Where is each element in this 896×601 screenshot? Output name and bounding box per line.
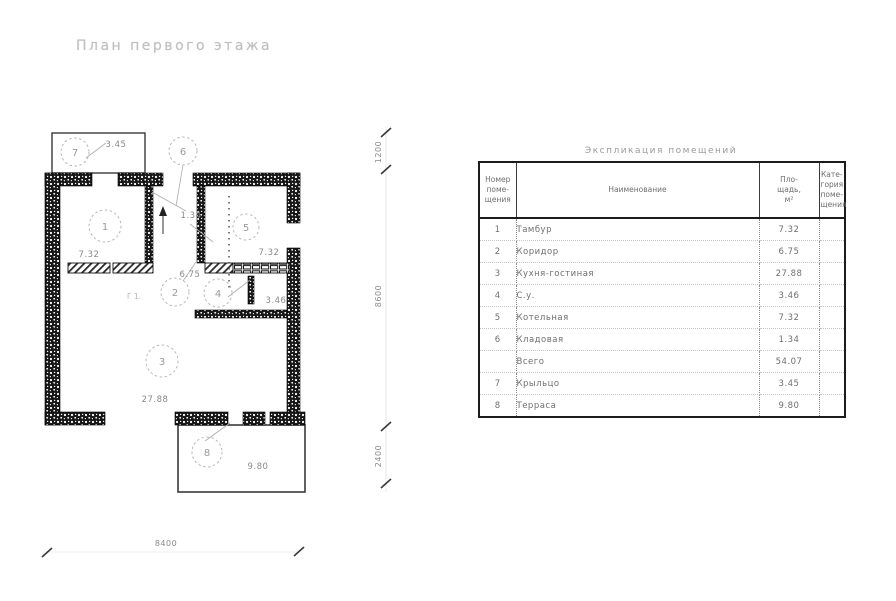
header-category: Кате- гория поме- щения — [819, 162, 845, 218]
area-label-room6: 1.34 — [181, 211, 202, 221]
area-label-room1: 7.32 — [79, 250, 100, 260]
terrace-outline — [178, 425, 305, 492]
cell-room-number — [479, 351, 516, 373]
cell-room-name: С.у. — [516, 285, 759, 307]
header-area: Пло- щадь, м² — [759, 162, 819, 218]
dim-bottom: 8400 — [155, 539, 177, 548]
dim-right-bottom: 2400 — [374, 445, 383, 467]
cell-room-area: 1.34 — [759, 329, 819, 351]
area-label-room5: 7.32 — [259, 248, 280, 258]
cell-room-category — [819, 307, 845, 329]
porch-outline — [52, 133, 145, 173]
area-label-room3: 27.88 — [142, 395, 169, 405]
cell-room-area: 9.80 — [759, 395, 819, 418]
room-number-5: 5 — [243, 223, 249, 234]
cell-room-area: 6.75 — [759, 241, 819, 263]
dimension-line-bottom: 8400 — [42, 539, 304, 557]
cell-room-number: 1 — [479, 218, 516, 241]
cell-room-number: 5 — [479, 307, 516, 329]
cell-room-name: Кладовая — [516, 329, 759, 351]
cell-room-category — [819, 218, 845, 241]
cell-room-name: Кухня-гостиная — [516, 263, 759, 285]
cell-room-category — [819, 351, 845, 373]
table-row: 4 С.у. 3.46 — [479, 285, 845, 307]
table-row: 3 Кухня-гостиная 27.88 — [479, 263, 845, 285]
cell-room-area: 7.32 — [759, 218, 819, 241]
cell-room-number: 3 — [479, 263, 516, 285]
header-name: Наименование — [516, 162, 759, 218]
cell-room-category — [819, 263, 845, 285]
cell-total-label: Всего — [516, 351, 759, 373]
area-label-room7: 3.45 — [106, 140, 127, 150]
table-row: 7 Крыльцо 3.45 — [479, 373, 845, 395]
cell-room-number: 6 — [479, 329, 516, 351]
misc-label: Г 1. — [127, 292, 141, 301]
area-label-room2: 6.75 — [180, 270, 201, 280]
cell-room-name: Котельная — [516, 307, 759, 329]
table-title: Экспликация помещений — [478, 146, 844, 156]
room-number-3: 3 — [159, 357, 165, 368]
room-number-8: 8 — [204, 448, 210, 459]
table-row: 2 Коридор 6.75 — [479, 241, 845, 263]
area-label-room8: 9.80 — [248, 462, 269, 472]
cell-room-number: 2 — [479, 241, 516, 263]
cell-room-area: 27.88 — [759, 263, 819, 285]
explication-table: Номер поме- щения Наименование Пло- щадь… — [478, 161, 846, 418]
table-row: 8 Терраса 9.80 — [479, 395, 845, 418]
entrance-arrow — [159, 206, 167, 234]
table-row: 5 Котельная 7.32 — [479, 307, 845, 329]
cell-room-category — [819, 395, 845, 418]
floor-plan-drawing: 1 2 3 4 5 6 7 8 3.45 7.32 1.34 6.75 7.32… — [0, 0, 430, 601]
explication-section: Экспликация помещений Номер поме- щения … — [478, 146, 844, 418]
dim-right-middle: 8600 — [374, 285, 383, 307]
room-number-6: 6 — [180, 147, 186, 158]
cell-room-name: Терраса — [516, 395, 759, 418]
cell-room-category — [819, 285, 845, 307]
table-row-total: Всего 54.07 — [479, 351, 845, 373]
dim-right-top: 1200 — [374, 141, 383, 163]
cell-room-category — [819, 373, 845, 395]
header-room-number: Номер поме- щения — [479, 162, 516, 218]
table-row: 1 Тамбур 7.32 — [479, 218, 845, 241]
cell-room-category — [819, 329, 845, 351]
cell-room-number: 7 — [479, 373, 516, 395]
room-number-1: 1 — [102, 222, 108, 233]
cell-room-number: 8 — [479, 395, 516, 418]
area-label-room4: 3.46 — [266, 296, 287, 306]
cell-room-name: Коридор — [516, 241, 759, 263]
cell-room-number: 4 — [479, 285, 516, 307]
cell-room-category — [819, 241, 845, 263]
dimension-line-right: 1200 8600 2400 — [374, 127, 391, 492]
table-row: 6 Кладовая 1.34 — [479, 329, 845, 351]
cell-room-area: 7.32 — [759, 307, 819, 329]
room-number-4: 4 — [215, 289, 221, 300]
cell-room-name: Тамбур — [516, 218, 759, 241]
room-number-7: 7 — [72, 148, 78, 159]
cell-room-area: 3.45 — [759, 373, 819, 395]
table-header-row: Номер поме- щения Наименование Пло- щадь… — [479, 162, 845, 218]
cell-room-name: Крыльцо — [516, 373, 759, 395]
cell-total-area: 54.07 — [759, 351, 819, 373]
cell-room-area: 3.46 — [759, 285, 819, 307]
room-number-2: 2 — [172, 288, 178, 299]
